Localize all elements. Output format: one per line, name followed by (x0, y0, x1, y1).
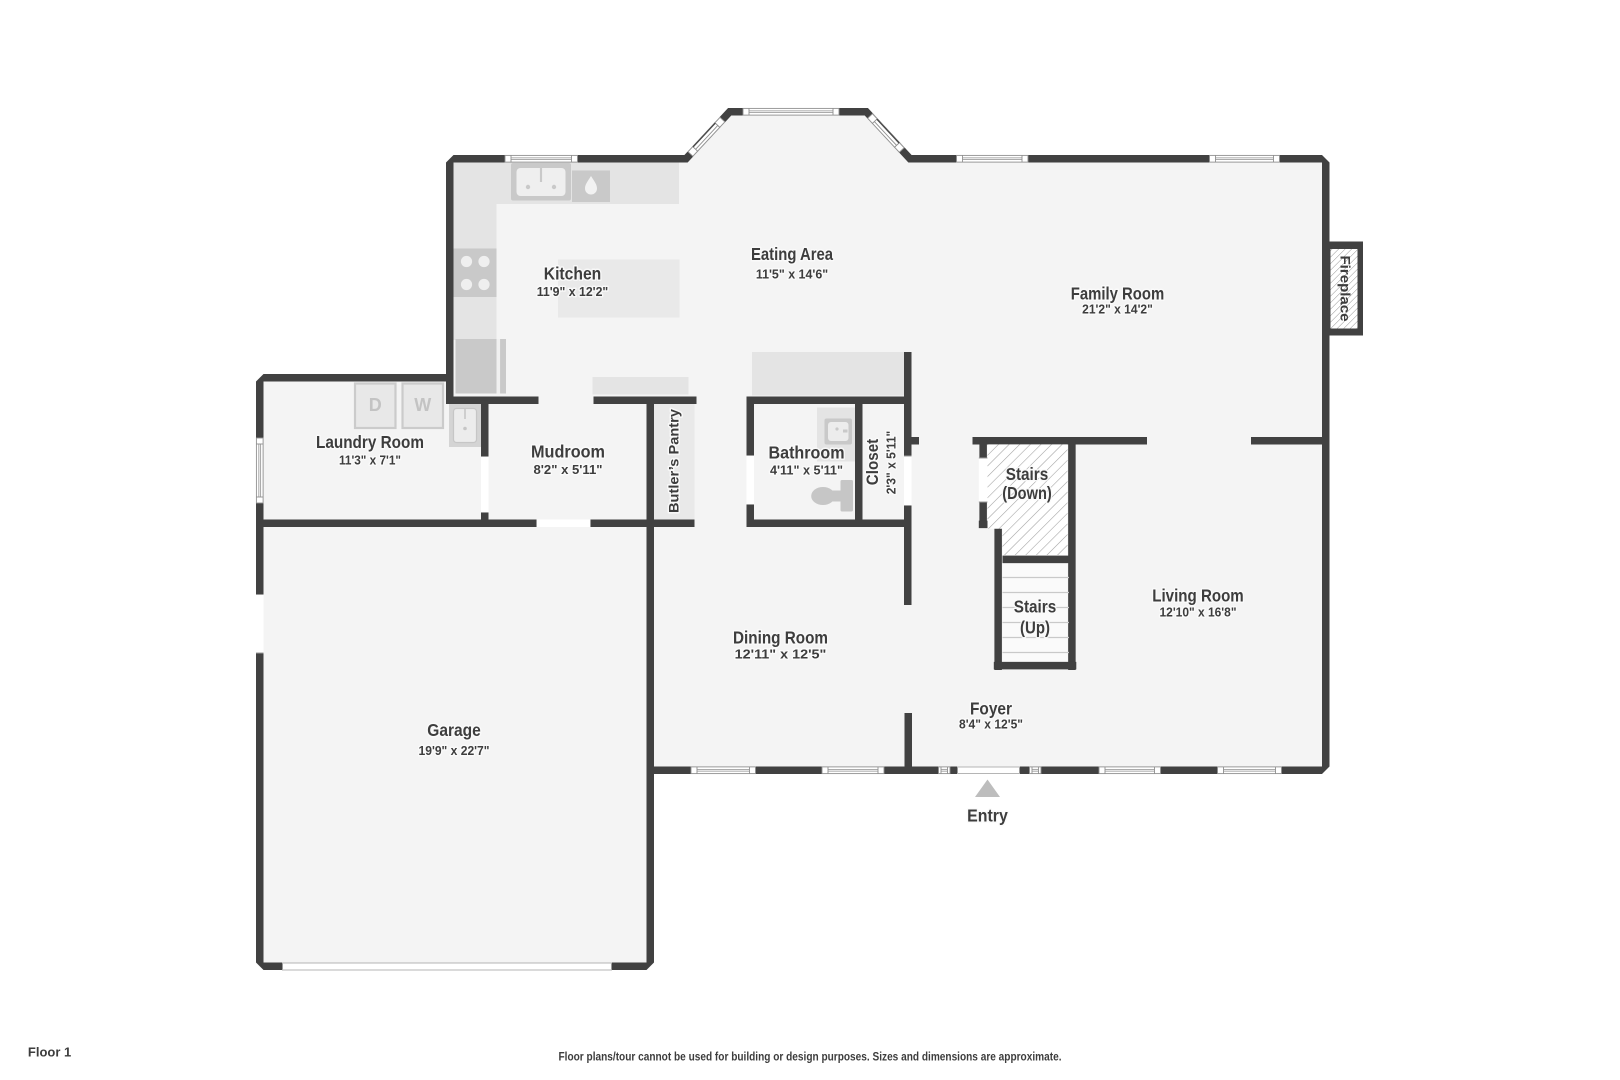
svg-text:Mudroom: Mudroom (531, 442, 605, 462)
svg-text:Garage: Garage (427, 720, 481, 740)
svg-text:11'3" x 7'1": 11'3" x 7'1" (339, 453, 401, 468)
svg-text:Eating Area: Eating Area (751, 244, 833, 264)
svg-text:Floor plans/tour cannot be use: Floor plans/tour cannot be used for buil… (559, 1052, 1062, 1064)
svg-text:(Up): (Up) (1020, 618, 1050, 638)
svg-text:8'2" x 5'11": 8'2" x 5'11" (534, 462, 603, 477)
svg-text:Laundry Room: Laundry Room (316, 432, 424, 452)
svg-text:Stairs: Stairs (1006, 464, 1049, 484)
svg-text:12'11" x 12'5": 12'11" x 12'5" (735, 647, 827, 662)
svg-text:2'3" x 5'11": 2'3" x 5'11" (884, 431, 899, 495)
svg-text:Stairs: Stairs (1014, 597, 1057, 617)
svg-text:Foyer: Foyer (970, 699, 1012, 719)
svg-text:Closet: Closet (863, 439, 882, 486)
svg-text:Fireplace: Fireplace (1338, 256, 1353, 323)
svg-text:4'11" x 5'11": 4'11" x 5'11" (770, 463, 843, 478)
svg-text:(Down): (Down) (1002, 483, 1052, 503)
svg-text:21'2" x 14'2": 21'2" x 14'2" (1082, 302, 1153, 317)
svg-text:11'5" x 14'6": 11'5" x 14'6" (756, 267, 828, 282)
svg-text:W: W (414, 395, 431, 415)
svg-text:Family Room: Family Room (1071, 284, 1165, 304)
svg-text:19'9" x 22'7": 19'9" x 22'7" (419, 743, 490, 758)
svg-text:Living Room: Living Room (1152, 586, 1244, 606)
svg-text:8'4" x 12'5": 8'4" x 12'5" (959, 717, 1023, 732)
svg-text:Kitchen: Kitchen (544, 264, 602, 284)
svg-text:Floor 1: Floor 1 (28, 1045, 71, 1060)
svg-text:D: D (369, 395, 382, 415)
svg-text:Bathroom: Bathroom (769, 443, 845, 463)
svg-text:11'9" x 12'2": 11'9" x 12'2" (537, 284, 609, 299)
svg-text:Butler’s Pantry: Butler’s Pantry (666, 409, 682, 513)
svg-text:Entry: Entry (967, 806, 1008, 826)
svg-text:12'10" x 16'8": 12'10" x 16'8" (1160, 605, 1237, 620)
svg-text:Dining Room: Dining Room (733, 628, 828, 648)
